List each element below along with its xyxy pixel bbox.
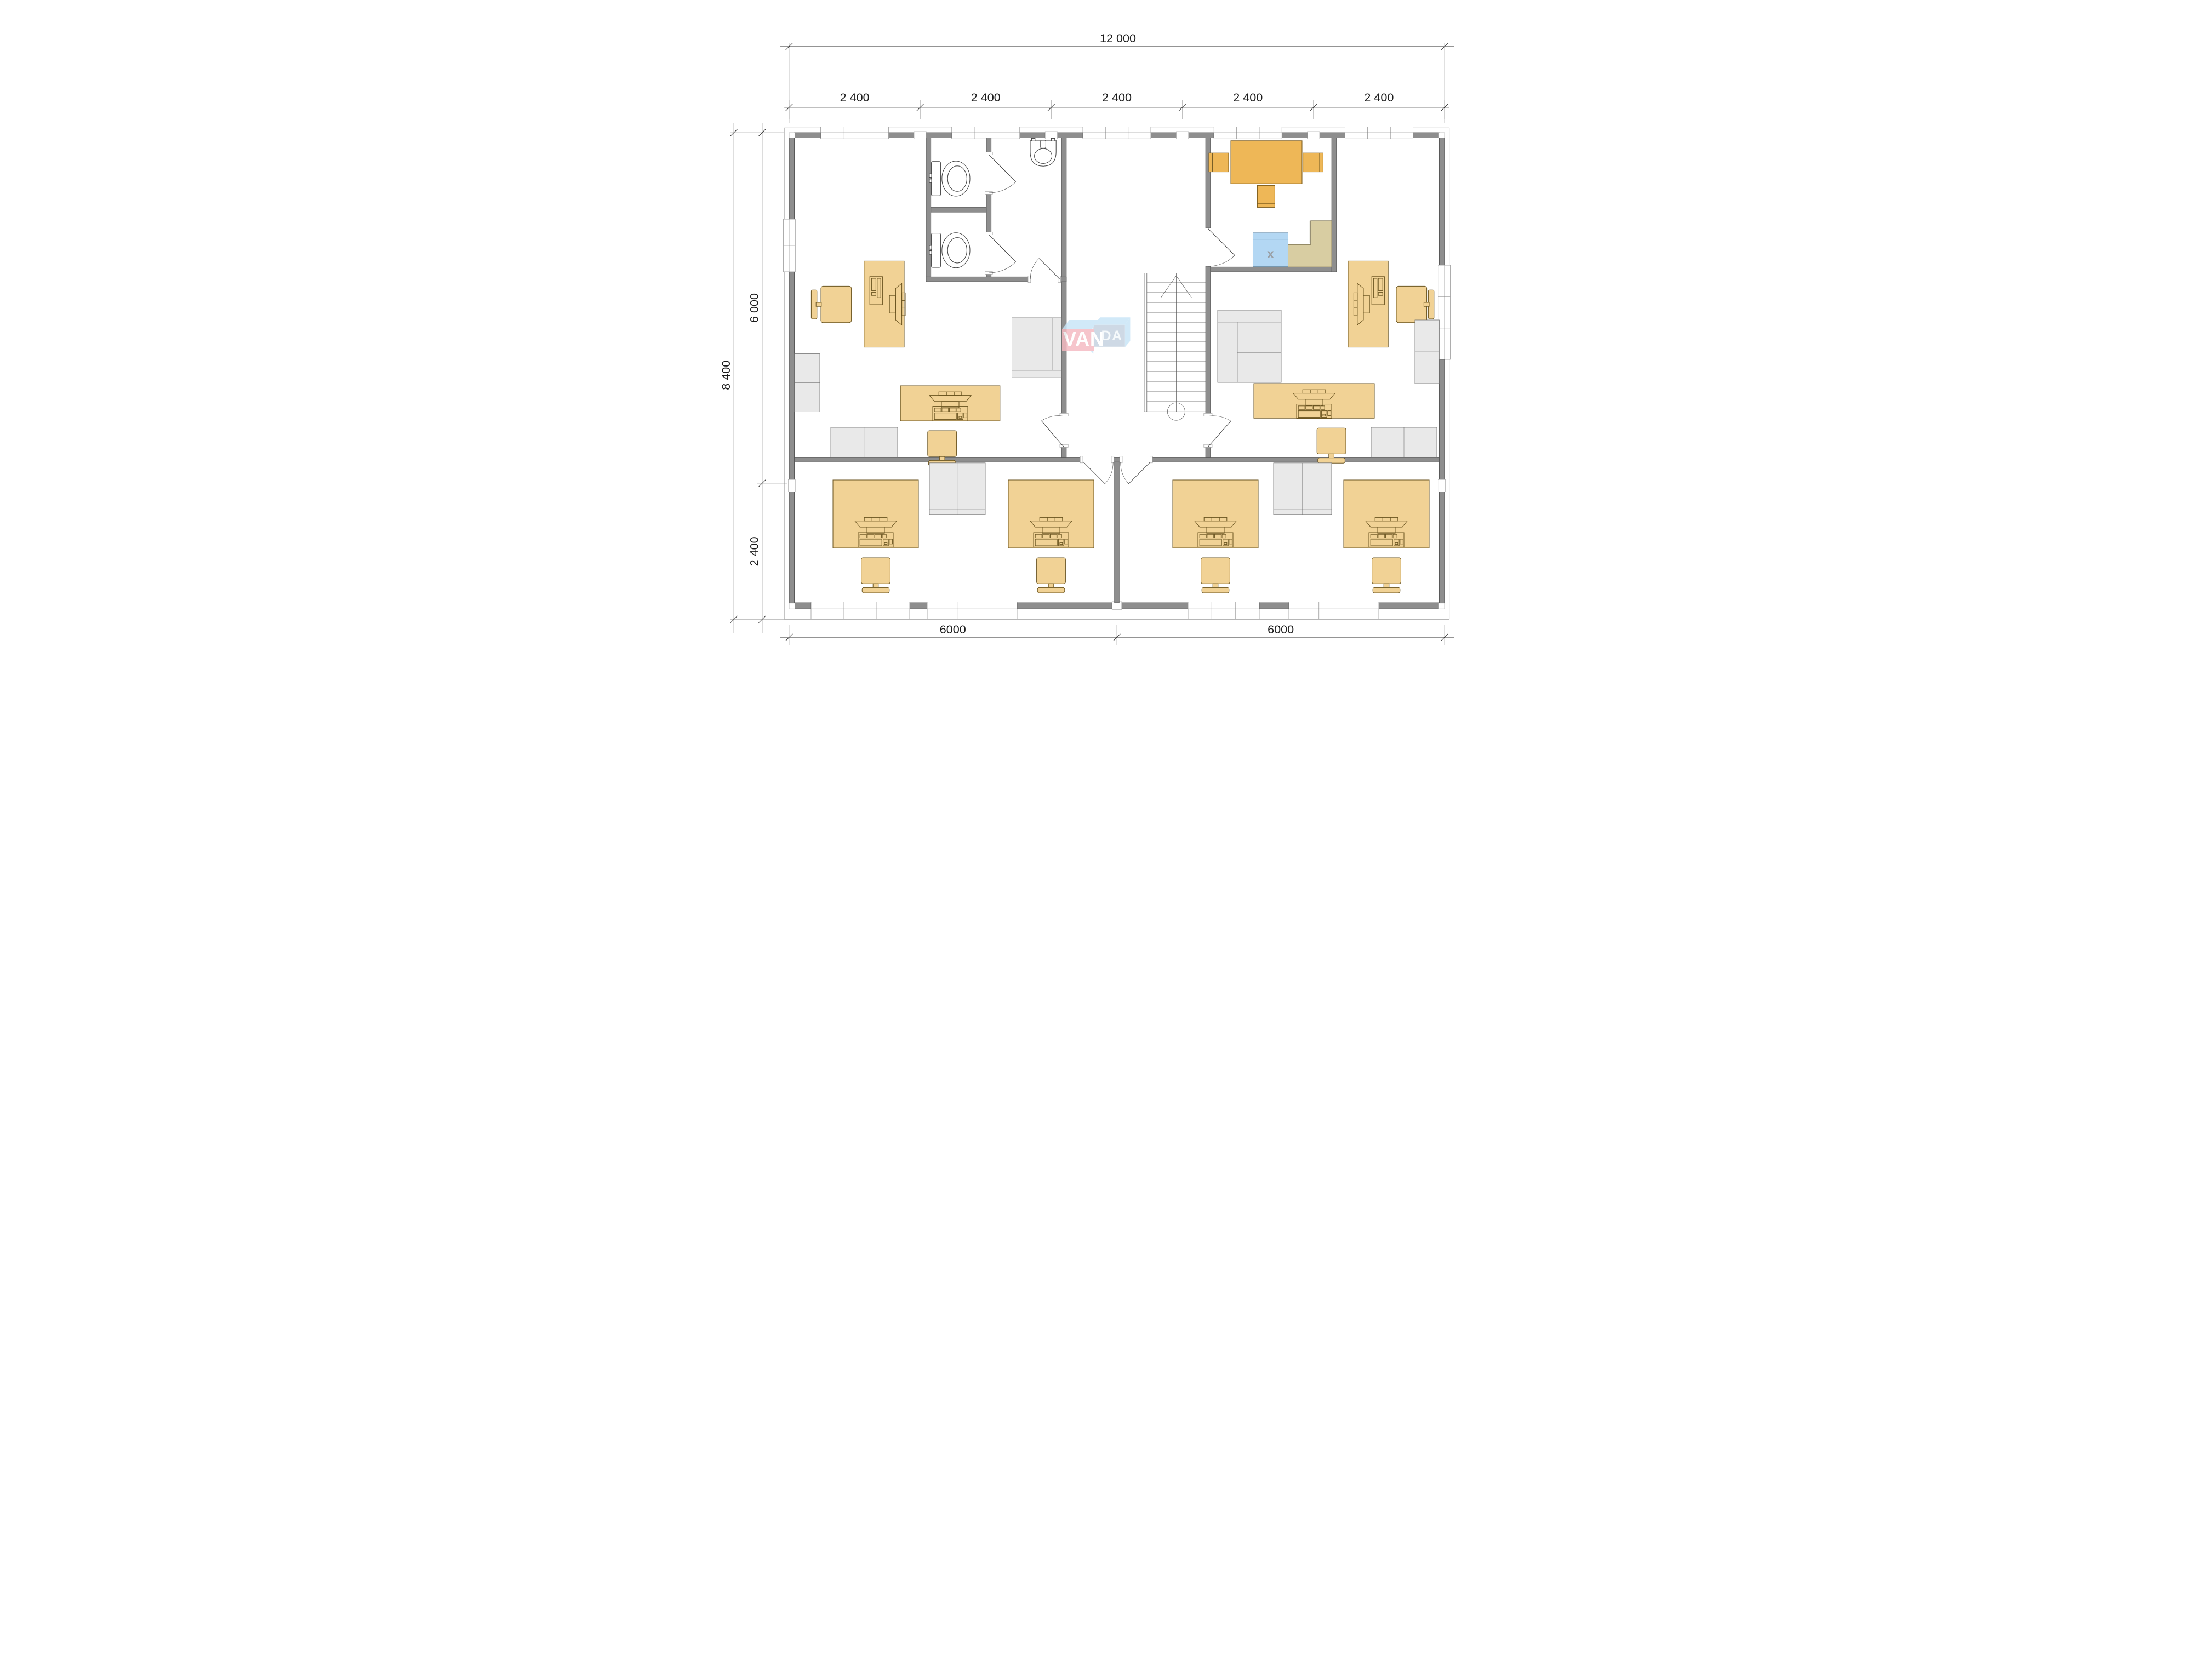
dim-top-segment: 2 400 [1364,90,1394,104]
sink [1030,138,1056,166]
dishwasher-appliance: x [1253,233,1288,267]
toilet [929,161,970,196]
wardrobe-cabinet [1218,310,1281,382]
office-left [795,261,1061,466]
door-jamb [1204,444,1212,447]
meeting-table [1231,141,1302,184]
logo-text-da: DA [1101,329,1123,344]
wall-segment [1189,133,1214,138]
workstation-desk [1348,261,1388,347]
wall-segment [1206,266,1211,416]
wall-segment [1122,603,1188,609]
window [1438,265,1451,359]
wall-segment [1206,447,1211,458]
cabinet [1415,320,1439,384]
toilet [929,233,970,268]
wc-fixtures [929,138,1056,267]
wall-segment [926,133,951,138]
window [784,219,796,272]
wall-joint [789,603,795,609]
office-chair [1372,558,1401,593]
wall-segment [1439,492,1445,609]
dim-top-segment: 2 400 [971,90,1001,104]
floor-plan: 12 000 2 400 2 400 2 400 2 400 2 400 8 4… [658,0,1534,672]
dim-side-total: 8 400 [719,361,733,390]
door-jamb [985,152,993,155]
window [927,602,1017,619]
vanda-logo: VAN DA [1062,317,1130,353]
wall-segment [1061,447,1066,458]
door-office-right [1208,416,1231,447]
wall-joint [1439,603,1445,609]
cabinet [1274,463,1332,515]
door-jamb [985,232,993,235]
wall-segment [795,603,811,609]
door-wc-lobby [1030,259,1060,279]
dim-top-segment: 2 400 [840,90,870,104]
cabinet [1371,427,1437,457]
office-chair [1201,558,1230,593]
workstation-desk [1344,480,1429,548]
meeting-chair [1303,153,1323,172]
window [1083,127,1151,139]
dim-side-upper: 6 000 [747,293,761,323]
wall-segment [1114,457,1120,462]
door-office-left [1041,416,1064,447]
workstation-desk [1254,384,1374,419]
wall-joint [1176,132,1188,139]
wall-segment [926,138,931,282]
door-jamb [1060,444,1068,447]
office-bottom-right [1173,463,1429,593]
logo-cube-top [1093,317,1130,325]
logo-text-van: VAN [1063,328,1105,350]
wall-segment [1017,603,1112,609]
office-chair [1317,428,1346,463]
wall-segment [1151,133,1176,138]
floor-plan-canvas: 12 000 2 400 2 400 2 400 2 400 2 400 8 4… [658,0,1534,672]
wall-segment [1152,457,1440,462]
workstation-desk [900,386,1000,421]
door-jamb [1120,456,1122,463]
wall-segment [1058,133,1083,138]
wall-segment [1439,359,1445,479]
window [821,127,889,139]
wall-joint [1308,132,1320,139]
wall-segment [1413,133,1439,138]
workstation-desk [864,261,905,347]
wall-segment [1211,267,1337,272]
door-jamb [1150,456,1152,463]
cabinet [929,463,985,515]
wall-segment [986,193,991,233]
wall-segment [1320,133,1345,138]
wall-segment [789,272,795,479]
cabinet [1012,318,1061,378]
dim-bottom-left: 6000 [940,622,966,636]
wall-segment [795,133,821,138]
wall-joint [789,133,795,138]
wall-segment [1332,138,1337,272]
cabinet [795,354,820,412]
office-chair [928,431,957,466]
wall-joint [1438,479,1446,492]
wall-segment [1115,462,1120,603]
appliance-x-label: x [1267,247,1274,261]
door-jamb [1111,456,1114,463]
wall-joint [788,479,795,492]
cabinet [831,427,898,457]
door-meeting-room [1208,228,1235,266]
dim-top-total: 12 000 [1100,31,1136,45]
wall-segment [910,603,927,609]
wall-segment [986,138,991,153]
wall-segment [1282,133,1307,138]
window [952,127,1020,139]
wall-segment [1379,603,1439,609]
dim-bottom-right: 6000 [1268,622,1294,636]
wall-segment [789,492,795,609]
wall-segment [1020,133,1045,138]
wall-segment [1206,138,1211,228]
wall-segment [931,207,986,212]
door-wc-stall-2 [989,235,1015,273]
office-right [1218,261,1439,463]
kitchen-counter [1288,221,1332,267]
office-chair [1037,558,1066,593]
office-bottom-left [833,463,1094,593]
meeting-chair [1209,153,1229,172]
door-jamb [1080,456,1083,463]
wall-segment [1439,138,1445,265]
window [1345,127,1413,139]
dim-side-lower: 2 400 [747,536,761,566]
window [1214,127,1282,139]
staircase [1144,273,1206,420]
office-chair [811,286,851,322]
window [1188,602,1259,619]
wall-segment [789,138,795,219]
meeting-chair [1257,185,1275,207]
wall-joint [1439,133,1445,138]
wall-joint [914,132,926,139]
office-chair [1396,286,1434,322]
workstation-desk [1173,480,1258,548]
workstation-desk [833,480,918,548]
door-wc-stall-1 [989,155,1015,193]
wall-joint [1045,132,1057,139]
window [811,602,910,619]
office-chair [861,558,891,593]
window [1289,602,1379,619]
dim-top-segment: 2 400 [1233,90,1263,104]
workstation-desk [1008,480,1094,548]
wall-segment [926,277,1030,282]
wall-segment [889,133,914,138]
door-jamb [1058,276,1061,283]
door-office-bottom-right [1121,462,1150,484]
dim-top-segment: 2 400 [1102,90,1132,104]
wall-segment [1259,603,1289,609]
